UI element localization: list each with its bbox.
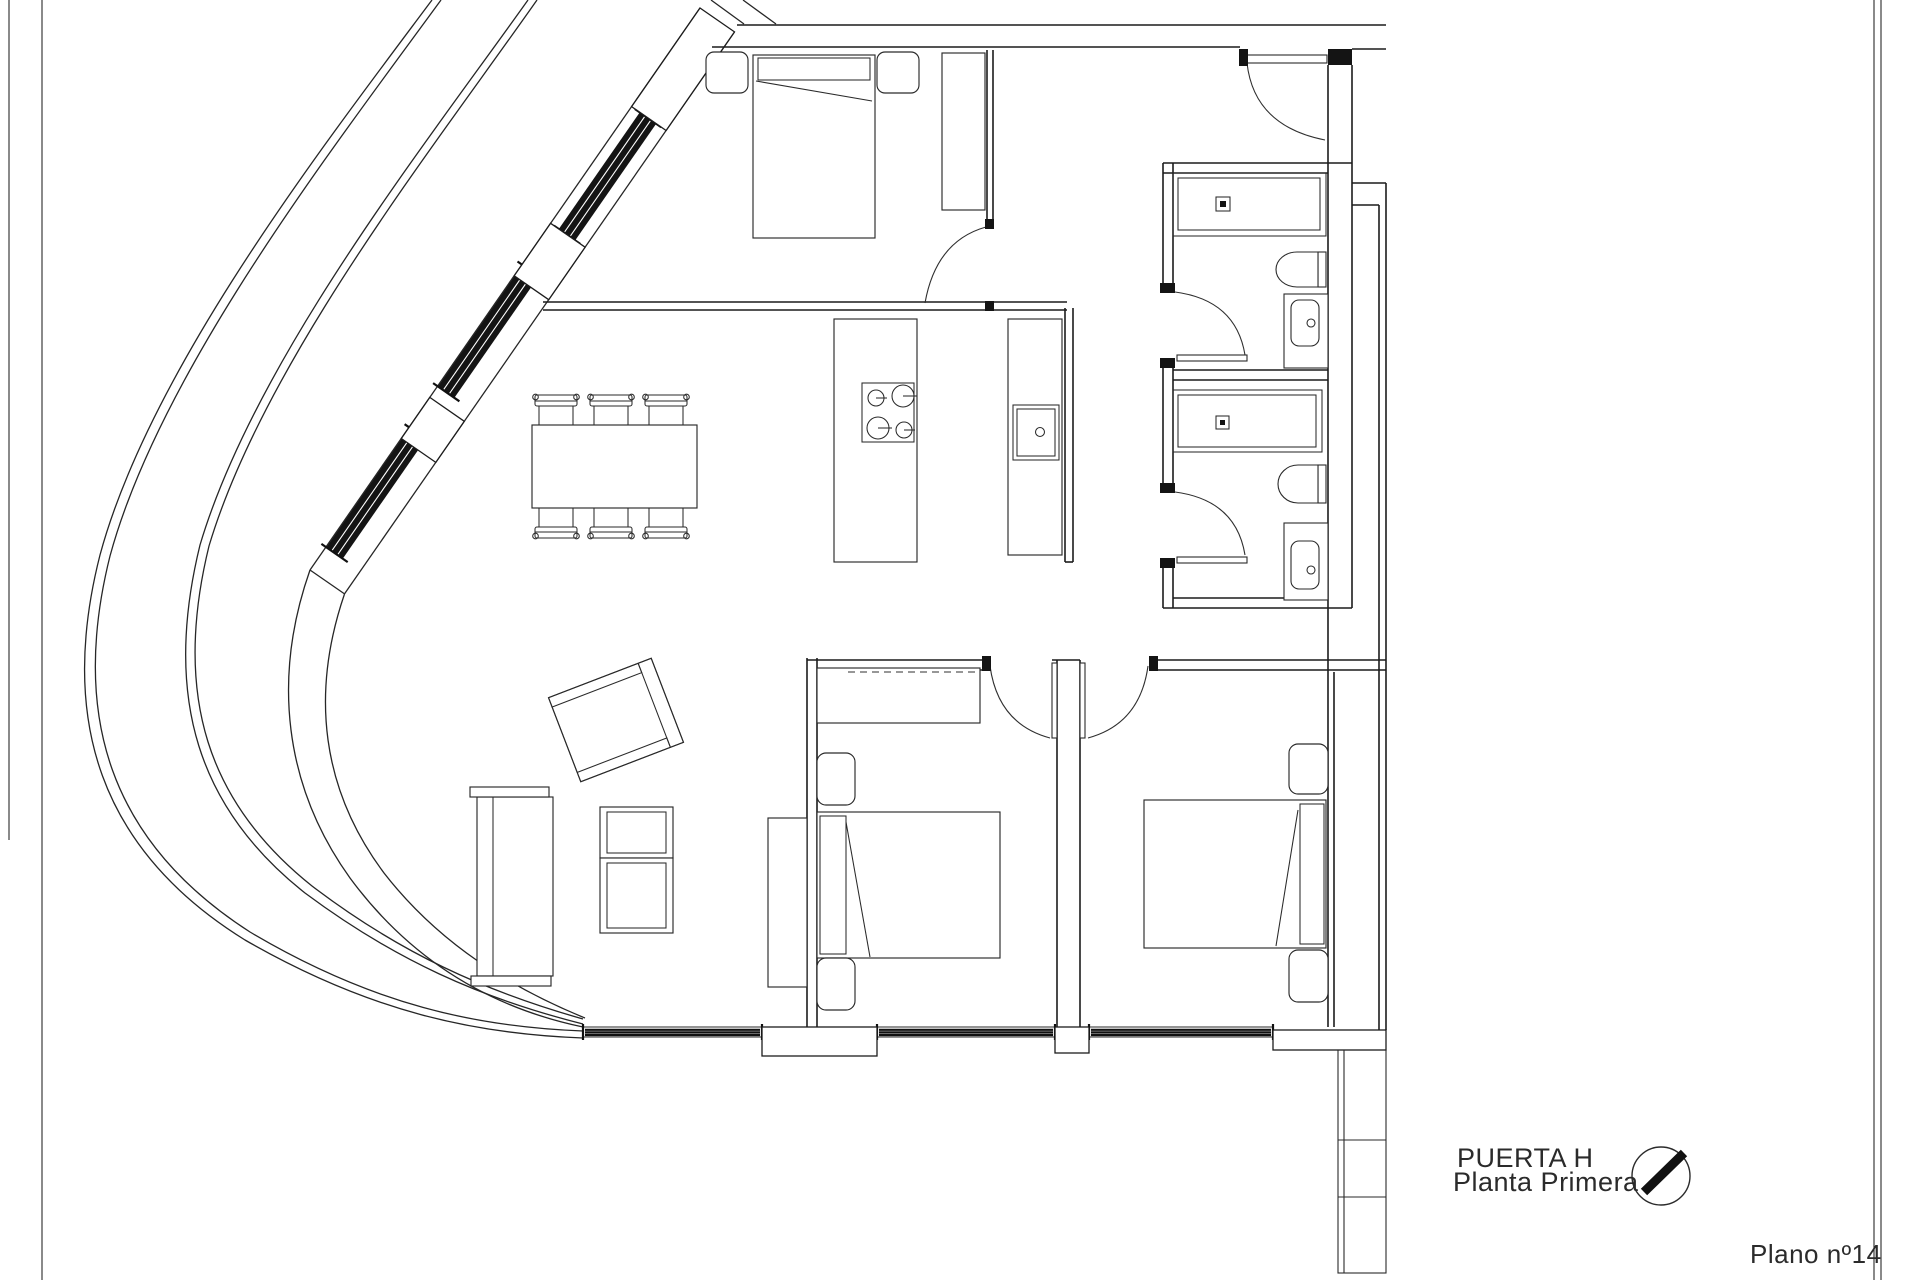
bedroom1-door xyxy=(925,219,994,311)
dining-chair xyxy=(643,394,690,425)
kitchen-island xyxy=(834,319,917,562)
dining-chair xyxy=(643,508,690,539)
dining-chair xyxy=(588,508,635,539)
bedroom1-wardrobe xyxy=(942,53,985,210)
bathroom1-door xyxy=(1160,283,1247,368)
south-east-wall-band xyxy=(1273,1030,1386,1050)
window-segment-3 xyxy=(1089,1024,1273,1040)
kitchen xyxy=(834,319,1062,562)
bedroom2-wardrobe xyxy=(817,668,980,723)
bedroom3-door xyxy=(1080,656,1158,738)
window-segment-2 xyxy=(877,1024,1055,1040)
bathroom1-sink xyxy=(1284,294,1328,368)
bedroom1-furniture xyxy=(706,52,985,238)
bedroom2-furniture xyxy=(817,668,1000,1010)
doors xyxy=(925,49,1352,738)
dining-table xyxy=(532,425,697,508)
bedroom3-nightstand-bottom xyxy=(1289,950,1328,1002)
kitchen-counter xyxy=(1008,319,1062,555)
window-pier-1 xyxy=(762,1027,877,1056)
living-room xyxy=(470,658,807,987)
bedroom1-nightstand-left xyxy=(706,52,748,93)
armchair-with-table xyxy=(600,807,673,933)
plan-number: Plano nº14 xyxy=(1750,1239,1882,1269)
bathroom1-shower xyxy=(1173,173,1326,236)
south-window-wall xyxy=(583,1024,1386,1056)
window-segment-1 xyxy=(583,1024,762,1040)
bedroom3-bed xyxy=(1144,800,1326,948)
stair-shaft xyxy=(1338,1050,1386,1273)
armchair-rotated xyxy=(549,658,684,781)
dining-chair xyxy=(588,394,635,425)
bedroom1-bed xyxy=(753,55,875,238)
bathroom2-toilet xyxy=(1278,465,1326,503)
bathroom2 xyxy=(1173,390,1328,600)
dining-chair xyxy=(533,508,580,539)
floorplan-sheet: PUERTA H Planta Primera Plano nº14 xyxy=(0,0,1920,1280)
entry-door xyxy=(1239,49,1352,140)
bedroom3-furniture xyxy=(1144,744,1328,1002)
bedroom2-nightstand-bottom xyxy=(817,958,855,1010)
dining-area xyxy=(532,394,697,539)
sofa xyxy=(470,787,553,986)
bedroom2-nightstand-top xyxy=(817,753,855,805)
window-pier-2 xyxy=(1055,1027,1089,1053)
bathroom2-shower xyxy=(1173,390,1322,452)
bedroom3-nightstand-top xyxy=(1289,744,1328,794)
plan-title-line2: Planta Primera xyxy=(1453,1167,1639,1197)
floor-plan-drawing: PUERTA H Planta Primera Plano nº14 xyxy=(0,0,1920,1280)
north-arrow-icon xyxy=(1632,1147,1690,1205)
bathroom2-sink xyxy=(1284,523,1328,600)
bathroom1 xyxy=(1173,173,1328,368)
dining-chair xyxy=(533,394,580,425)
bedroom2-door xyxy=(982,656,1057,738)
console-desk xyxy=(768,818,807,987)
bathroom1-toilet xyxy=(1276,252,1326,287)
bedroom1-nightstand-right xyxy=(877,52,919,93)
title-block: PUERTA H Planta Primera Plano nº14 xyxy=(1453,1143,1882,1269)
bathroom2-door xyxy=(1160,483,1247,568)
bedroom2-bed xyxy=(817,812,1000,958)
diagonal-window-1 xyxy=(554,109,661,244)
